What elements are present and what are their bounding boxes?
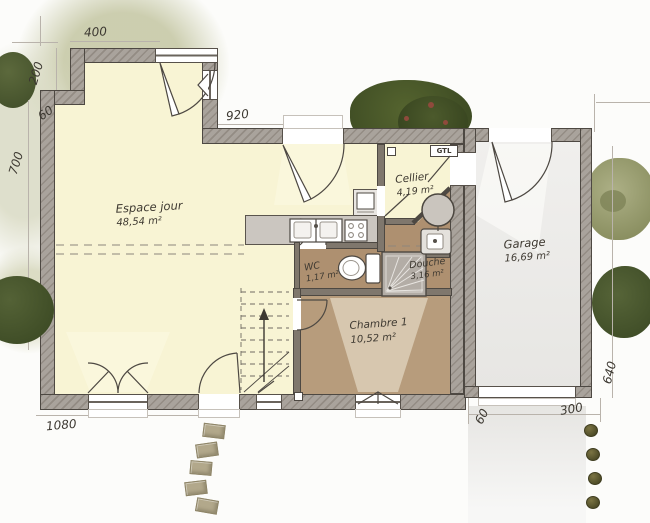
door-swing-garage-entry [492,142,552,202]
stairs-arrow-head [259,308,269,320]
room-label-cellier: Cellier 4,19 m² [395,170,435,200]
window-marker-chambre [358,392,398,404]
room-label-garage: Garage 16,69 m² [503,234,550,265]
washbasin-icon [421,229,451,254]
door-swing-french-left [88,363,118,393]
oven-icon [357,193,374,212]
room-label-espace-jour: Espace jour 48,54 m² [115,198,183,229]
floor-plan: GTL [0,0,650,523]
door-swing-french-right [118,363,148,393]
staircase [241,288,289,392]
door-swing-entrance [283,144,344,202]
dim-920: 920 [225,107,249,124]
toilet-icon [339,254,381,283]
room-label-chambre: Chambre 1 10,52 m² [349,316,409,347]
room-label-douche: Douche 3,16 m² [409,256,448,284]
kitchen-sink-icon [290,219,342,242]
dim-400: 400 [84,24,108,39]
dim-1080: 1080 [45,417,77,434]
cooktop-icon [345,220,367,241]
door-swing-bottom [199,353,240,393]
door-swing-chambre [297,300,327,330]
dashed-lines [56,245,432,254]
window-marker-upper-right [198,74,208,96]
water-heater-icon [422,194,454,231]
window-leaf-small [258,381,274,393]
